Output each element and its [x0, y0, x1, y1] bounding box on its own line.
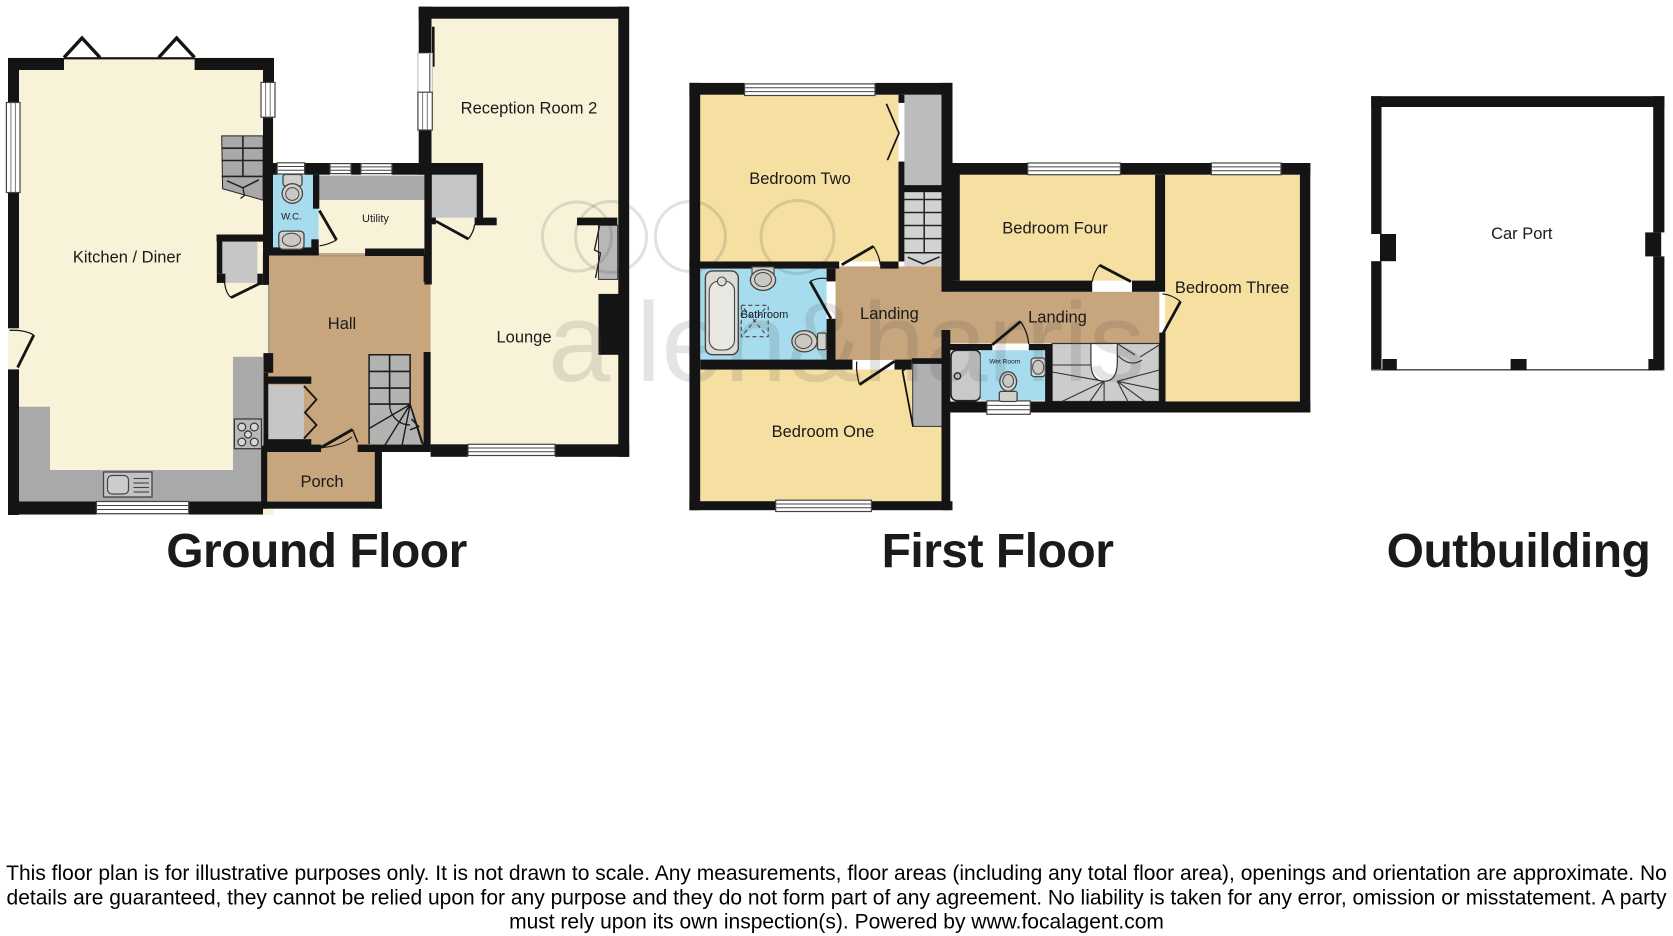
svg-text:allen&harris: allen&harris	[548, 280, 1145, 405]
svg-text:Bedroom Two: Bedroom Two	[749, 170, 851, 188]
svg-text:Ground Floor: Ground Floor	[166, 525, 467, 578]
svg-text:W.C.: W.C.	[281, 212, 302, 223]
svg-text:Bathroom: Bathroom	[741, 309, 789, 321]
svg-text:Outbuilding: Outbuilding	[1387, 525, 1651, 578]
svg-text:Wet Room: Wet Room	[989, 358, 1021, 365]
svg-text:Lounge: Lounge	[496, 329, 551, 347]
svg-text:Bedroom Three: Bedroom Three	[1175, 279, 1289, 297]
svg-text:Reception Room 2: Reception Room 2	[461, 100, 598, 118]
svg-text:Bedroom One: Bedroom One	[772, 423, 875, 441]
svg-text:details are guaranteed, they c: details are guaranteed, they cannot be r…	[7, 887, 1667, 910]
svg-text:This floor plan is for illustr: This floor plan is for illustrative purp…	[6, 862, 1667, 885]
svg-text:First Floor: First Floor	[882, 525, 1114, 578]
svg-text:Landing: Landing	[1028, 309, 1087, 327]
svg-text:Car Port: Car Port	[1491, 225, 1553, 243]
svg-text:Landing: Landing	[860, 305, 919, 323]
svg-text:Kitchen / Diner: Kitchen / Diner	[73, 249, 182, 267]
svg-text:Hall: Hall	[328, 315, 356, 333]
svg-text:must rely upon its own inspect: must rely upon its own inspection(s). Po…	[509, 911, 1164, 934]
svg-text:Utility: Utility	[362, 213, 389, 225]
svg-text:Bedroom Four: Bedroom Four	[1002, 219, 1108, 237]
svg-text:Porch: Porch	[300, 473, 343, 491]
